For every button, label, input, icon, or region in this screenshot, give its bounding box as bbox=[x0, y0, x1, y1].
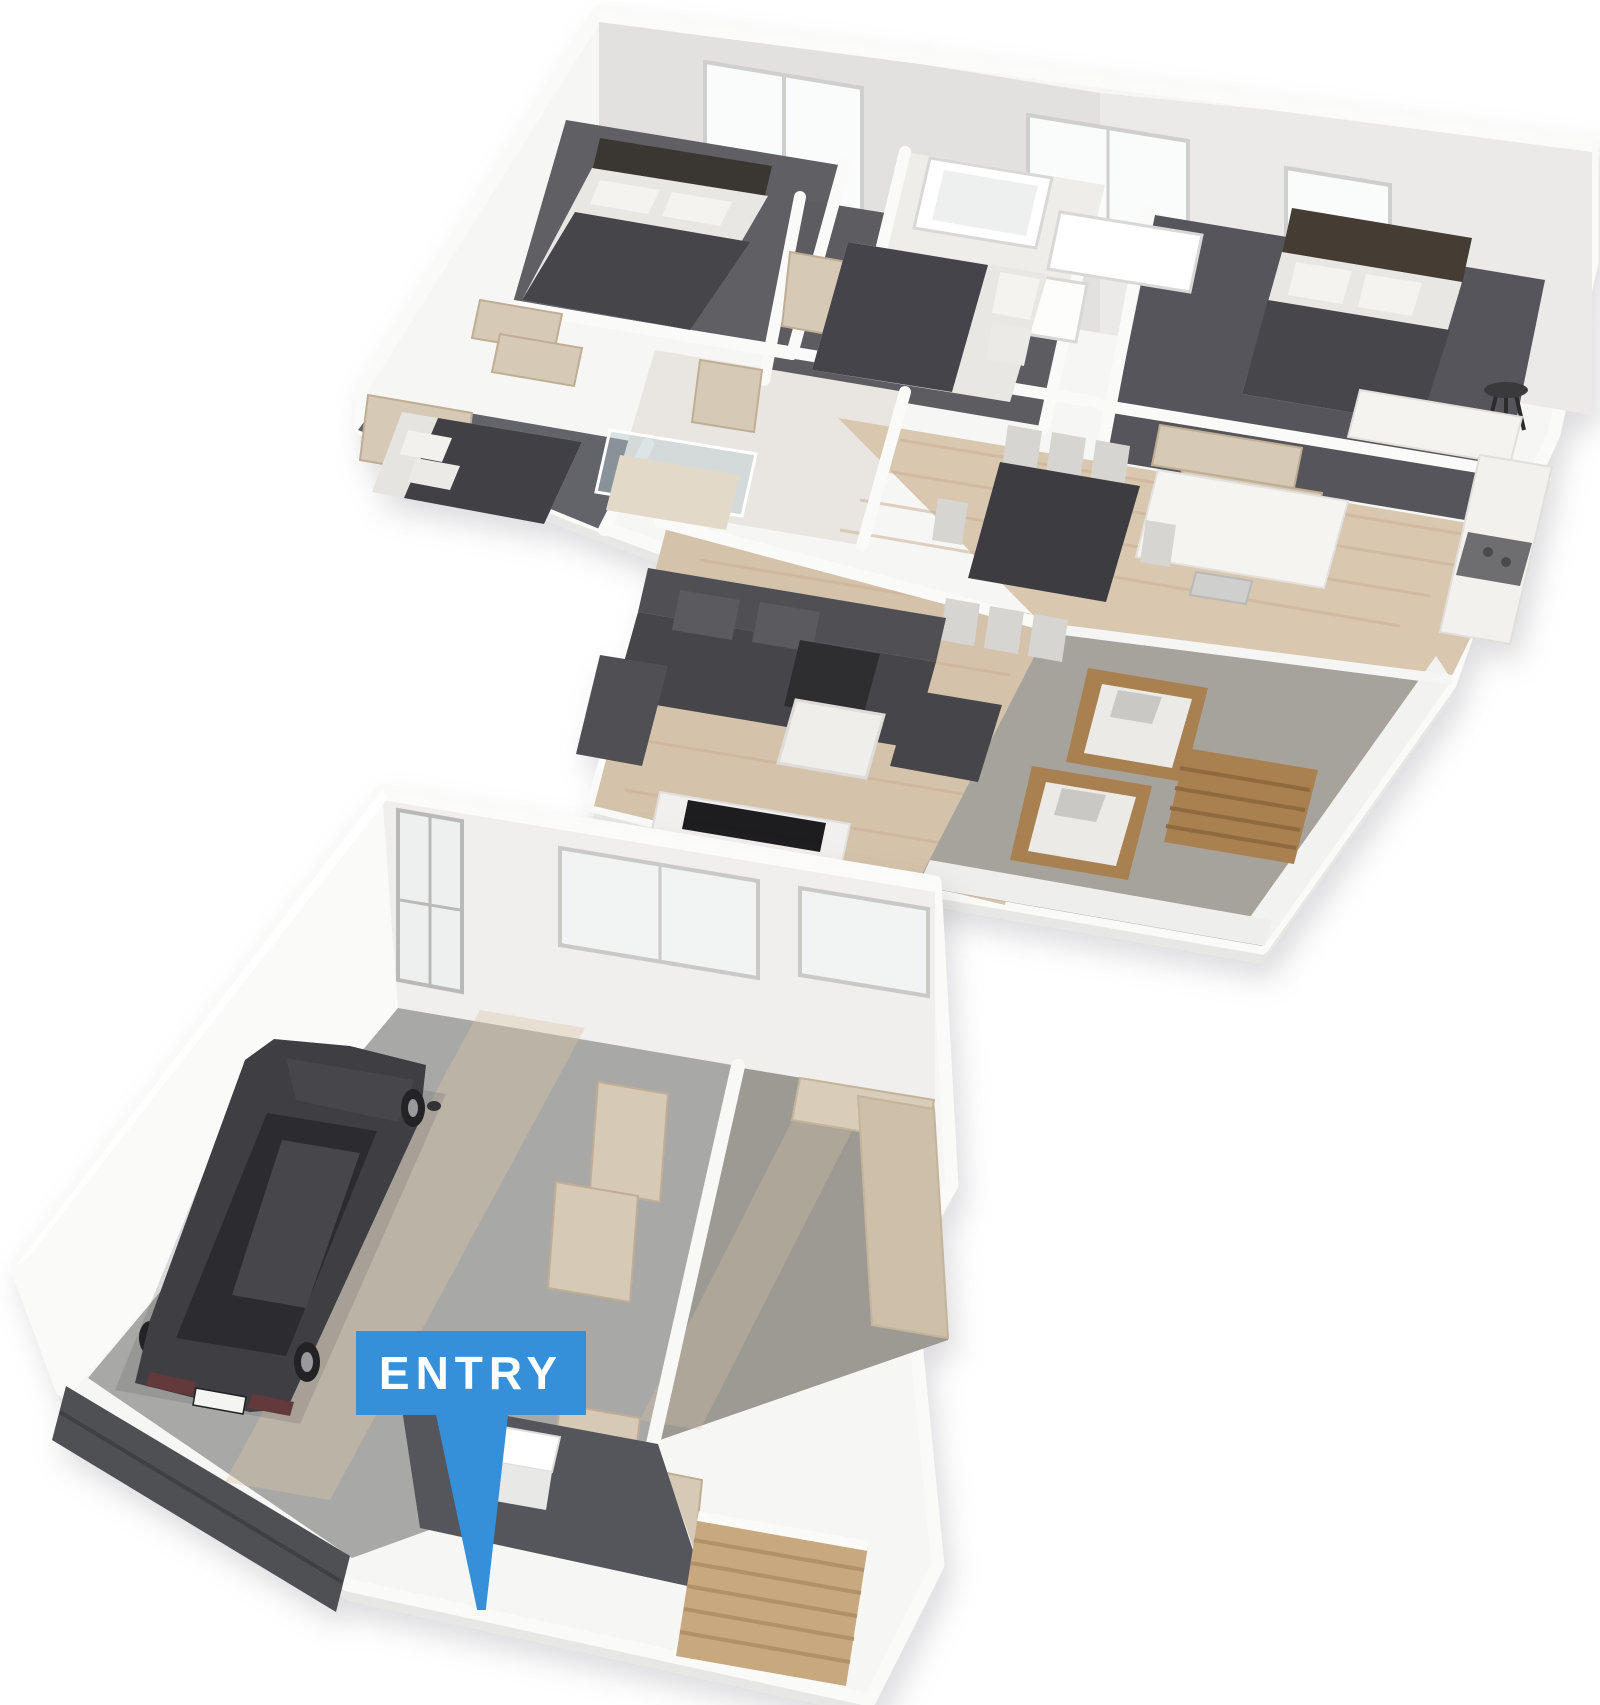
staircase bbox=[676, 1516, 868, 1686]
lower-window-2 bbox=[800, 888, 928, 996]
entry-marker-label: ENTRY bbox=[379, 1346, 563, 1400]
coffee-table bbox=[778, 700, 884, 778]
garage-glass-door bbox=[398, 810, 462, 992]
bench-right bbox=[858, 1096, 948, 1338]
floorplan-svg bbox=[0, 0, 1600, 1705]
floorplan-render: ENTRY bbox=[0, 0, 1600, 1705]
bed1-pillow bbox=[986, 322, 1032, 366]
outdoor-armchair bbox=[1010, 766, 1152, 880]
entry-marker: ENTRY bbox=[356, 1331, 586, 1415]
car-mirror bbox=[427, 1101, 441, 1111]
